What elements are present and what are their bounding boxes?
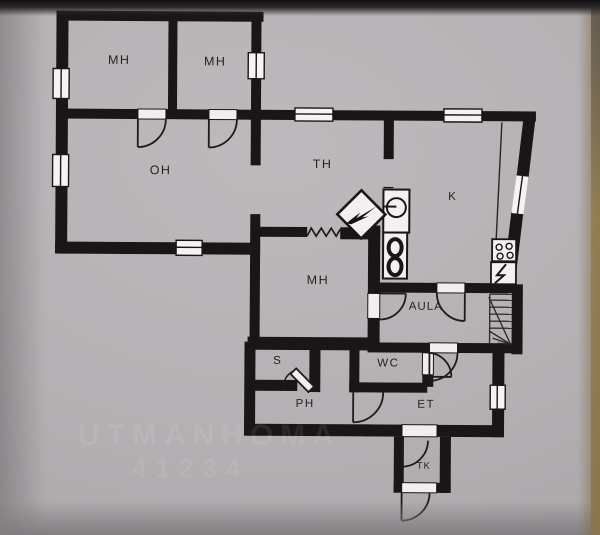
watermark-line1: UTMANHOMA [78,419,341,452]
room-label-mh1: MH [108,53,131,67]
window-symbol [176,240,202,255]
window-symbol [511,175,528,215]
door-arc [380,293,406,319]
door-arc [138,119,166,147]
room-label-et: ET [417,399,435,411]
stove-icon [383,233,407,279]
staircase [489,294,512,345]
room-label-th: TH [313,157,333,171]
room-label-tk: TK [417,461,431,472]
room-label-oh: OH [150,163,172,177]
door-arc [401,493,429,521]
sink-icon [383,190,409,233]
floor-plan-photo: MH MH OH TH K MH AULA S WC PH ET TK UTMA… [0,0,600,535]
window-symbol [53,68,69,98]
door-arc [353,392,383,422]
electric-panel-icon [491,262,516,284]
window-symbol [490,385,505,409]
watermark-line2: 41234 [132,452,341,484]
window-symbol [295,108,333,121]
window-symbol [248,53,264,79]
watermark: UTMANHOMA 41234 [78,420,341,484]
counter-edge [496,122,502,239]
door-arc [209,119,237,147]
room-label-k: K [448,191,457,203]
radiator-zigzag-icon [307,228,340,236]
room-label-aula: AULA [409,301,443,313]
room-label-ph: PH [296,398,315,410]
room-label-wc: WC [377,357,399,369]
cooktop-icon [492,239,516,261]
window-symbol [52,154,68,186]
room-label-mh2: MH [204,54,227,68]
room-label-s: S [273,355,282,367]
window-symbol [444,109,482,122]
room-label-mh3: MH [307,273,330,287]
